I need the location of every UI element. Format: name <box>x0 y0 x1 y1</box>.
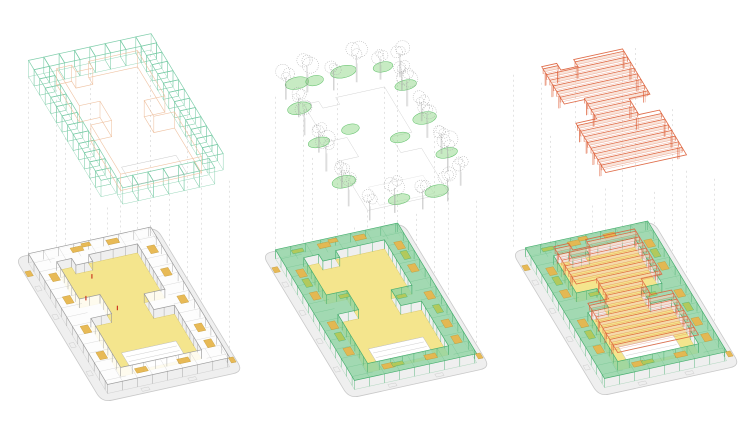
planting-blob <box>372 60 394 74</box>
planting-plan <box>265 223 486 397</box>
panel-planting <box>265 41 486 397</box>
planting-layer <box>276 41 469 221</box>
roof-structure-layer <box>542 49 687 176</box>
planting-blob <box>305 74 325 88</box>
panel-roof-structure <box>514 48 737 395</box>
tree <box>391 41 410 78</box>
cube-grid-frame <box>29 34 224 205</box>
courtyard-extrusion-outline <box>57 51 202 191</box>
planting-blob <box>424 183 450 200</box>
planting-blob <box>341 122 361 136</box>
exploded-axonometric-diagram <box>0 0 750 446</box>
diagram-canvas <box>0 0 750 446</box>
planting-blob <box>387 192 411 206</box>
panel-modular-frame <box>18 34 239 401</box>
tree <box>453 157 469 186</box>
planting-blob <box>389 131 411 145</box>
modular-frame-plan <box>18 227 239 401</box>
planting-blob <box>435 146 459 160</box>
roof-structure-plan <box>515 221 736 395</box>
modular-frame-layer <box>29 34 224 205</box>
tree-planting-layer <box>276 41 469 221</box>
truss-roof <box>542 49 687 176</box>
